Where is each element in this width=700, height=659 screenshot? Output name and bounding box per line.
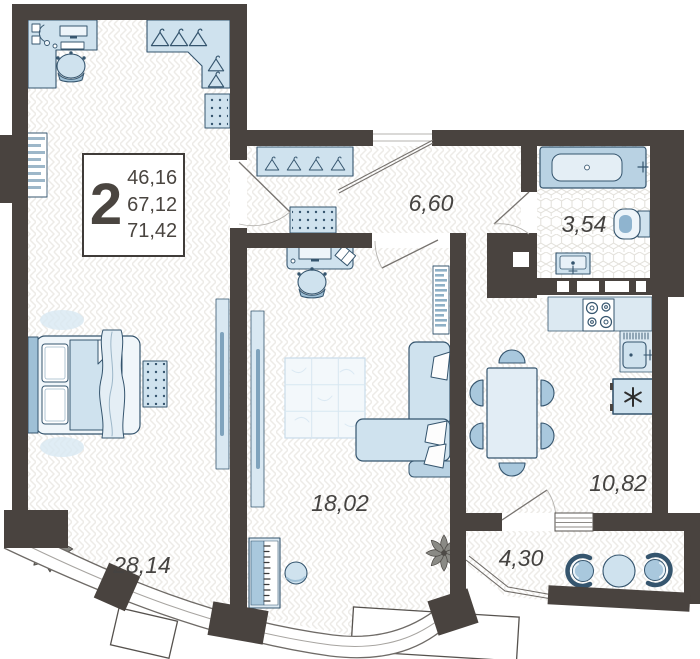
piano (249, 538, 280, 608)
balcony-door-opening (502, 513, 555, 531)
desk-speaker-icon (32, 24, 40, 32)
wall (668, 131, 684, 297)
balcony-table (603, 555, 635, 587)
tv-icon (220, 332, 224, 436)
monitor-stand (70, 36, 77, 39)
dresser-dotted (205, 94, 230, 128)
area-total: 71,42 (127, 218, 177, 244)
tv-icon (256, 349, 260, 469)
wall (247, 233, 372, 248)
room-area-bedroom: 28,14 (112, 552, 171, 578)
room-area-living: 18,02 (311, 490, 369, 516)
room-area-balcony: 4,30 (499, 545, 544, 571)
wall (230, 4, 247, 162)
wall (593, 513, 700, 531)
bedside-rug (40, 437, 84, 457)
wall (247, 130, 373, 146)
wall (652, 295, 668, 515)
tv-panel-bedroom (216, 299, 229, 469)
apartment-info-box: 2 46,16 67,12 71,42 (82, 153, 185, 257)
four-burner-stove-icon (583, 299, 614, 331)
doormat-dotted (290, 207, 336, 233)
wall (12, 4, 28, 512)
wall (12, 4, 247, 20)
bedroom-door-opening (230, 160, 247, 228)
monitor-icon (299, 247, 331, 259)
balcony-window (555, 513, 593, 531)
drain-icon (585, 165, 590, 170)
keyboard-icon (61, 42, 84, 49)
monitor-icon (60, 26, 87, 36)
headboard (28, 337, 38, 433)
wall (230, 226, 247, 618)
area-rug (285, 358, 365, 438)
dining-table (487, 368, 537, 458)
wall (521, 146, 537, 192)
floor-plan-drawing: 28,14 18,02 6,60 3,54 10,82 4,30 (0, 0, 700, 659)
sofa-pillow (425, 421, 447, 446)
wall (450, 233, 466, 605)
mouse-icon (53, 44, 57, 48)
rooms-count: 2 (90, 179, 122, 231)
kitchen-sink (620, 331, 655, 372)
wall (684, 518, 700, 604)
bathtub (540, 147, 648, 188)
pillow (42, 344, 68, 382)
nightstand-dotted (143, 361, 167, 407)
bedside-rug (40, 310, 84, 330)
bookshelf (433, 266, 449, 334)
entrance-opening (373, 130, 432, 146)
fridge (610, 379, 653, 414)
area-usable: 67,12 (127, 192, 177, 218)
wall (466, 513, 502, 531)
area-living: 46,16 (127, 165, 177, 191)
wall-pier (0, 135, 13, 203)
floor-plan: 28,14 18,02 6,60 3,54 10,82 4,30 2 46,16… (0, 0, 700, 659)
area-values: 46,16 67,12 71,42 (127, 165, 177, 244)
bathroom-sink (556, 253, 590, 274)
desk-speaker-icon (32, 36, 40, 44)
pillow (42, 386, 68, 424)
toilet (614, 209, 650, 239)
coat-rack (257, 147, 353, 176)
room-area-kitchen: 10,82 (589, 470, 647, 496)
kitchen-counter (548, 297, 652, 331)
piano-stool (285, 562, 307, 584)
mouse-icon (291, 259, 295, 263)
wall (432, 130, 684, 146)
room-area-bathroom: 3,54 (562, 211, 607, 237)
room-area-hallway: 6,60 (409, 190, 454, 216)
bathroom-door-opening (521, 192, 537, 233)
living-door-opening (372, 233, 450, 248)
tv-panel-living (251, 311, 264, 507)
wall-pillar (4, 510, 68, 548)
wall (650, 146, 668, 278)
